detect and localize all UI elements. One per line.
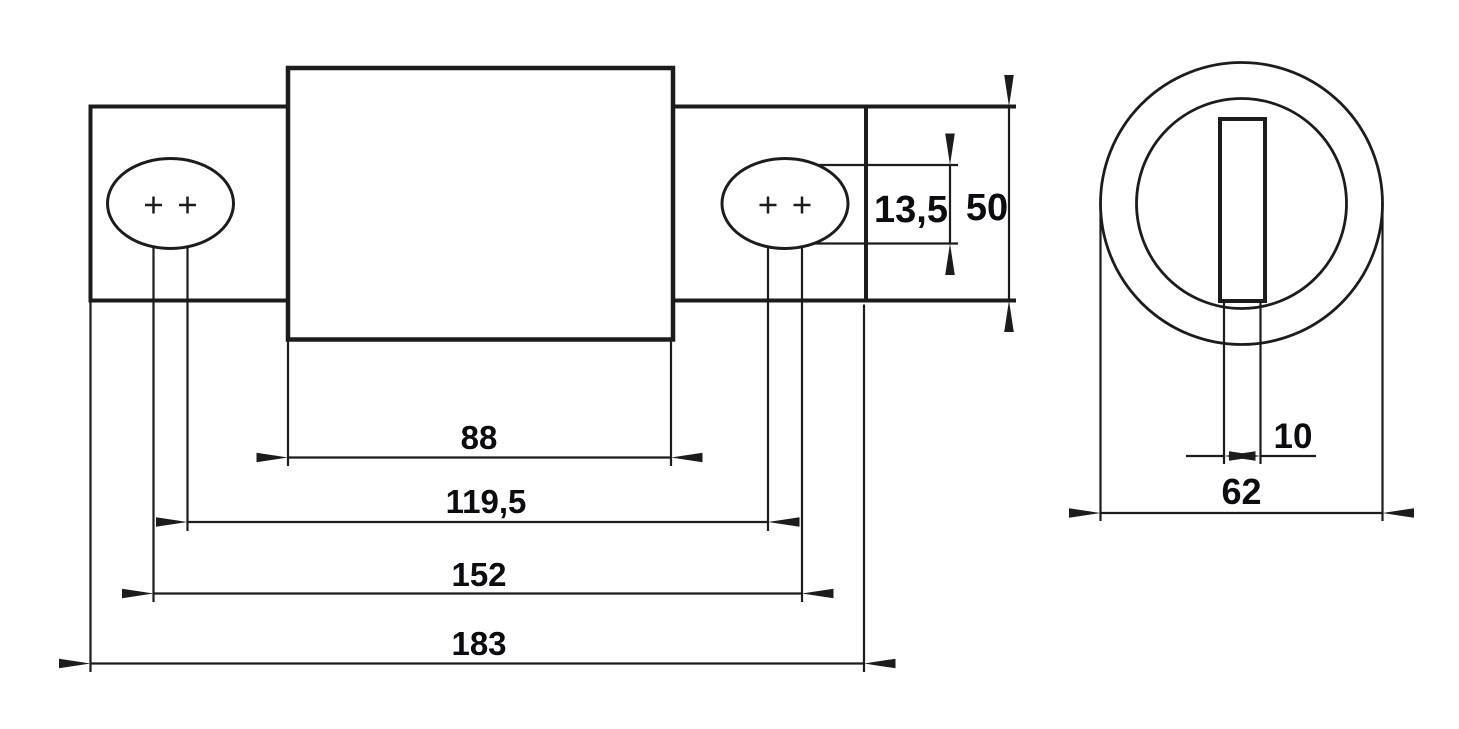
technical-drawing: 88 119,5 152 183 13,5 50 10 62 [0, 0, 1459, 729]
dimension-value-slot-width: 10 [1274, 417, 1313, 456]
drawing-canvas: 88 119,5 152 183 13,5 50 10 62 [0, 0, 1459, 729]
blade-slot [1220, 119, 1265, 301]
dimension-value-slot-height: 13,5 [874, 189, 948, 231]
dimension-value-hole-spacing-inner: 119,5 [446, 483, 527, 520]
dimension-value-outer-diameter: 62 [1221, 471, 1261, 512]
dimension-value-tab-height: 50 [966, 187, 1008, 229]
dimension-value-overall-length: 183 [451, 625, 506, 662]
right-mounting-tab [673, 107, 866, 301]
dimension-value-hole-spacing-outer: 152 [451, 556, 506, 593]
left-mounting-tab [91, 107, 289, 301]
fuse-body [288, 68, 673, 340]
dimension-value-body-width: 88 [461, 419, 498, 456]
